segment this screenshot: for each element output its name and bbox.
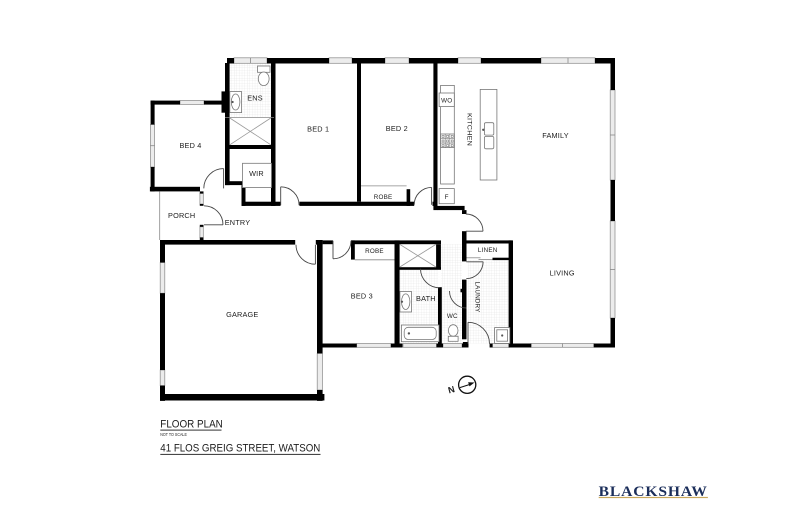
- svg-text:BATH: BATH: [416, 294, 436, 303]
- svg-text:FLOOR PLAN: FLOOR PLAN: [160, 418, 223, 430]
- svg-text:LINEN: LINEN: [478, 247, 498, 254]
- svg-text:ENTRY: ENTRY: [225, 218, 251, 227]
- svg-text:GARAGE: GARAGE: [226, 310, 258, 319]
- svg-text:F: F: [445, 194, 449, 201]
- svg-text:BED 3: BED 3: [351, 291, 373, 300]
- svg-text:WIR: WIR: [249, 169, 264, 178]
- svg-text:ROBE: ROBE: [365, 248, 384, 255]
- svg-text:BED 1: BED 1: [307, 124, 329, 133]
- svg-text:NOT TO SCALE: NOT TO SCALE: [160, 432, 187, 438]
- svg-text:LIVING: LIVING: [550, 268, 575, 277]
- svg-text:WC: WC: [447, 313, 458, 320]
- svg-text:FAMILY: FAMILY: [542, 131, 569, 140]
- svg-text:BED 2: BED 2: [386, 124, 408, 133]
- svg-text:LAUNDRY: LAUNDRY: [474, 282, 481, 314]
- svg-text:BED 4: BED 4: [179, 141, 201, 150]
- svg-text:41 FLOS GREIG STREET, WATSON: 41 FLOS GREIG STREET, WATSON: [160, 443, 320, 455]
- svg-text:KITCHEN: KITCHEN: [465, 113, 472, 146]
- svg-text:WO: WO: [441, 97, 452, 104]
- svg-text:ENS: ENS: [247, 94, 263, 103]
- svg-text:ROBE: ROBE: [374, 194, 393, 201]
- svg-text:PORCH: PORCH: [168, 211, 195, 220]
